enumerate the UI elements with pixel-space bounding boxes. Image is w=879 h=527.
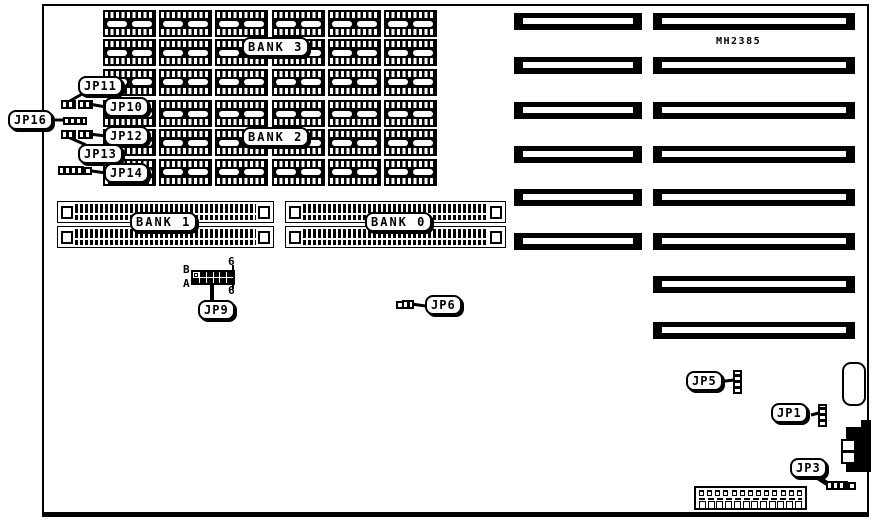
dram-chip: [328, 129, 381, 156]
jp9-pin-cell: [194, 273, 199, 277]
connector-pin: [699, 490, 704, 496]
dram-chip: [215, 100, 268, 127]
dram-chip: [159, 10, 212, 37]
jp16-pins: [63, 117, 87, 125]
dram-chip: [272, 10, 325, 37]
motherboard-diagram: BANK 3 BANK 2 BANK 1 BANK 0 MH2385 JP16 …: [0, 0, 879, 527]
jumper-label-jp6: JP6: [425, 295, 462, 315]
jp5-pins: [733, 370, 742, 394]
din-connector-pin-bottom: [841, 451, 856, 464]
connector-pin: [716, 501, 723, 509]
jp3-pin-cap: [848, 482, 856, 490]
jp9-pin-cell: [193, 278, 199, 283]
jp9-pin-cell: [207, 272, 213, 277]
bank0-label: BANK 0: [365, 212, 432, 232]
expansion-slot-left: [514, 189, 642, 206]
connector-pin: [732, 490, 737, 496]
dram-chip: [384, 100, 437, 127]
power-connector-bottom-pins: [699, 501, 802, 509]
jp9-count-top: 6: [228, 256, 235, 267]
expansion-slot-left: [514, 146, 642, 163]
jp9-header-block: [191, 270, 235, 285]
connector-pin: [797, 490, 802, 496]
connector-pin: [743, 501, 750, 509]
expansion-slot-left: [514, 57, 642, 74]
dram-chip: [272, 159, 325, 186]
jp9-row-b-label: B: [183, 264, 190, 275]
power-connector-top-pins: [699, 490, 802, 496]
jp9-pin-cell: [200, 272, 206, 277]
power-connector-divider: [699, 498, 802, 500]
connector-pin: [725, 501, 732, 509]
expansion-slot-right: [653, 57, 855, 74]
expansion-slot-right: [653, 322, 855, 339]
jumper-label-jp11: JP11: [78, 76, 123, 96]
dram-chip: [328, 100, 381, 127]
dram-chip: [328, 10, 381, 37]
din-connector-nub: [861, 420, 871, 428]
dram-chip: [384, 159, 437, 186]
jp9-pin-cell: [220, 272, 226, 277]
dram-chip: [328, 159, 381, 186]
connector-pin: [715, 490, 720, 496]
dram-chip: [215, 69, 268, 96]
dram-chip: [384, 10, 437, 37]
dram-chip: [159, 69, 212, 96]
connector-pin: [740, 490, 745, 496]
connector-pin: [707, 490, 712, 496]
jumper-label-jp14: JP14: [104, 163, 149, 183]
dram-chip: [159, 129, 212, 156]
expansion-slot-left: [514, 233, 642, 250]
power-connector: [694, 486, 807, 510]
connector-pin: [723, 490, 728, 496]
connector-pin: [777, 501, 784, 509]
jumper-label-jp1: JP1: [771, 403, 808, 423]
jp9-row-a-label: A: [183, 278, 190, 289]
jumper-label-jp9: JP9: [198, 300, 235, 320]
dram-chip: [328, 39, 381, 66]
jp6-pin-cap: [396, 301, 404, 309]
connector-pin: [786, 501, 793, 509]
expansion-slot-right: [653, 233, 855, 250]
expansion-slot-right: [653, 13, 855, 30]
battery-connector-outline: [842, 362, 866, 406]
expansion-slot-left: [514, 102, 642, 119]
dram-chip: [384, 39, 437, 66]
dram-chip: [272, 100, 325, 127]
dram-chip: [215, 159, 268, 186]
connector-pin: [751, 501, 758, 509]
jp9-pin-cell: [214, 278, 220, 283]
jp9-pin-cell: [227, 272, 233, 277]
dram-chip: [103, 39, 156, 66]
connector-pin: [781, 490, 786, 496]
connector-pin: [764, 490, 769, 496]
jumper-label-jp12: JP12: [104, 126, 149, 146]
bank2-label: BANK 2: [242, 127, 309, 147]
connector-pin: [795, 501, 802, 509]
jp10-pins: [78, 100, 93, 109]
expansion-slot-right: [653, 146, 855, 163]
jp9-pin-cell: [214, 272, 220, 277]
jumper-label-jp10: JP10: [104, 97, 149, 117]
connector-pin: [734, 501, 741, 509]
connector-pin: [789, 490, 794, 496]
dram-chip: [272, 69, 325, 96]
connector-pin: [708, 501, 715, 509]
dram-chip: [215, 10, 268, 37]
jp11-pins: [61, 100, 76, 109]
bank3-label: BANK 3: [242, 37, 309, 57]
jp9-pin-cell: [220, 278, 226, 283]
jp14-pin-cap: [84, 167, 92, 175]
jp9-pin-cell: [227, 278, 233, 283]
jp9-pin-cell: [207, 278, 213, 283]
connector-pin: [760, 501, 767, 509]
chip-part-number: MH2385: [716, 36, 761, 47]
jumper-label-jp16: JP16: [8, 110, 53, 130]
expansion-slot-left: [514, 13, 642, 30]
dram-chip: [159, 39, 212, 66]
connector-pin: [699, 501, 706, 509]
dram-chip: [103, 10, 156, 37]
connector-pin: [756, 490, 761, 496]
jumper-label-jp5: JP5: [686, 371, 723, 391]
jp9-pin-cell: [200, 278, 206, 283]
dram-chip: [384, 129, 437, 156]
expansion-slot-right: [653, 102, 855, 119]
jp13-pins: [61, 130, 76, 139]
bank1-label: BANK 1: [130, 212, 197, 232]
jumper-label-jp3: JP3: [790, 458, 827, 478]
dram-chip: [384, 69, 437, 96]
jp12-pins: [78, 130, 93, 139]
dram-chip: [328, 69, 381, 96]
connector-pin: [772, 490, 777, 496]
connector-pin: [769, 501, 776, 509]
jp1-pins: [818, 404, 827, 427]
dram-chip: [159, 159, 212, 186]
jumper-label-jp13: JP13: [78, 144, 123, 164]
expansion-slot-right: [653, 276, 855, 293]
connector-pin: [748, 490, 753, 496]
jp14-pins: [58, 166, 84, 175]
expansion-slot-right: [653, 189, 855, 206]
jp9-count-bottom: 6: [228, 285, 235, 296]
jp3-pins: [826, 481, 848, 490]
dram-chip: [159, 100, 212, 127]
